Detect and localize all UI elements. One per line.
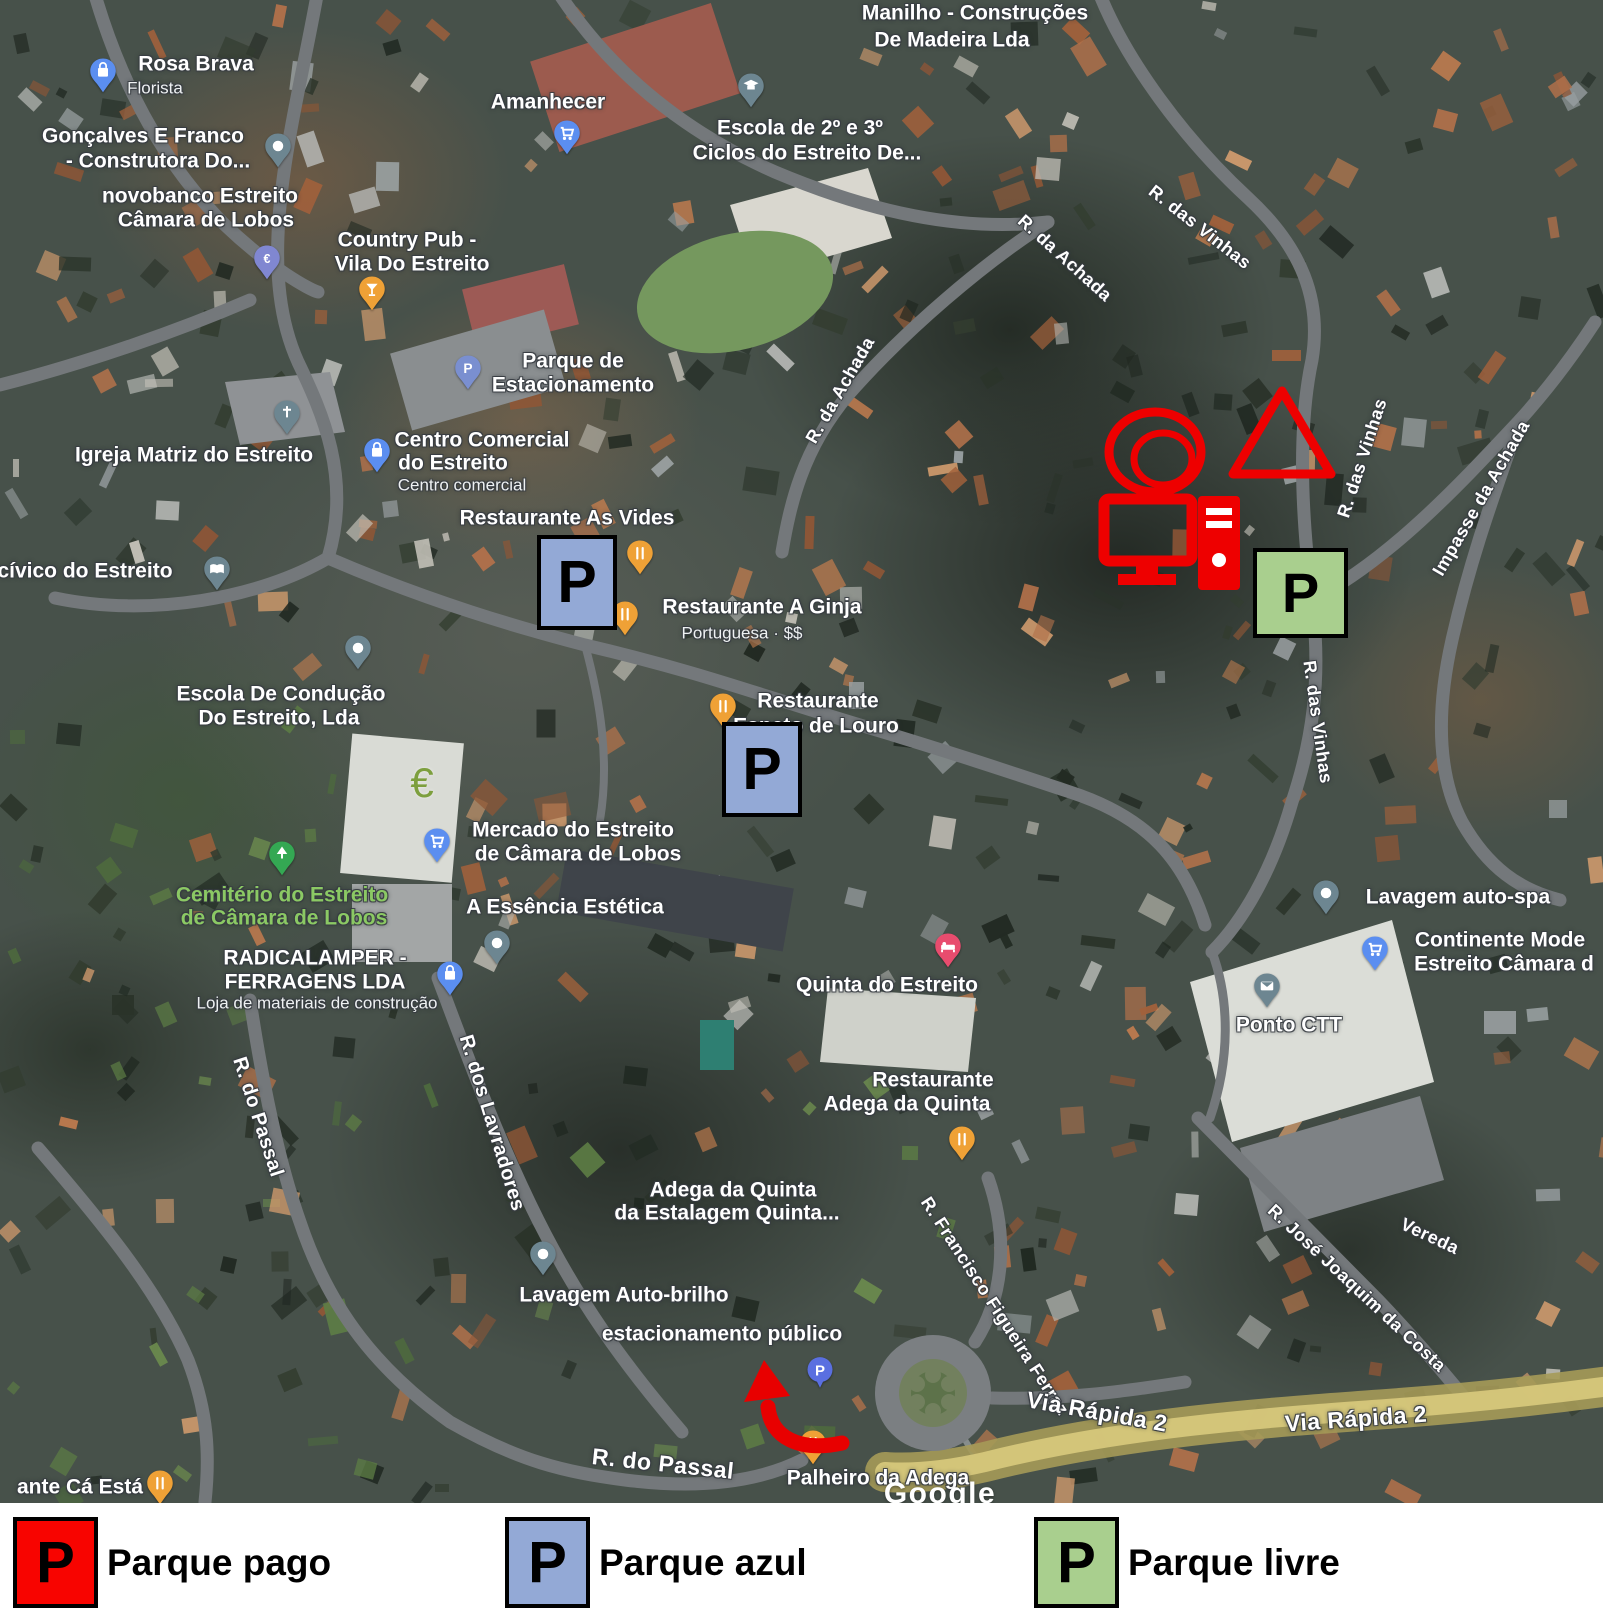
map-label: Estacionamento [492,375,654,396]
map-label: Igreja Matriz do Estreito [75,445,313,466]
bar-pin[interactable] [357,275,387,313]
post-office-pin[interactable] [1252,972,1282,1010]
map-label: Quinta do Estreito [796,975,978,996]
map-label: Amanhecer [491,92,605,113]
map-label: RADICALAMPER - [223,948,406,969]
map-label: Ciclos do Estreito De... [693,143,922,164]
place-pin[interactable] [528,1240,558,1278]
legend-parking-box-red: P [13,1517,98,1608]
library-pin[interactable] [202,555,232,593]
satellite-map[interactable]: Manilho - ConstruçõesDe Madeira LdaRosa … [0,0,1603,1503]
public-parking-pin[interactable]: P [805,1355,835,1393]
legend-parking-box-green: P [1034,1517,1119,1608]
shop-pin[interactable] [362,437,392,475]
place-pin[interactable] [1311,879,1341,917]
shop-pin[interactable] [88,57,118,95]
legend-label: Parque pago [107,1542,331,1584]
store-pin[interactable] [552,119,582,157]
map-label: do Estreito [398,453,508,474]
map-label: Estreito Câmara d [1414,954,1594,975]
map-label: Cemitério do Estreito [176,885,388,906]
map-label: Rosa Brava [138,54,254,75]
map-label: - Construtora Do... [66,151,250,172]
map-label: Restaurante A Ginja [662,597,861,618]
map-label: cívico do Estreito [0,561,173,582]
map-label: A Essência Estética [466,897,664,918]
map-label: Gonçalves E Franco [42,126,244,147]
screenshot: Manilho - ConstruçõesDe Madeira LdaRosa … [0,0,1603,1612]
map-label: Country Pub - [338,230,477,251]
map-label: Lavagem Auto-brilho [519,1285,728,1306]
map-label: Portuguesa · $$ [682,625,803,642]
parking-box-blue[interactable]: P [722,722,802,817]
svg-text:P: P [463,361,472,376]
map-label: Adega da Quinta [824,1094,991,1115]
parking-box-blue[interactable]: P [537,535,617,630]
school-pin[interactable] [736,72,766,110]
parking-pin[interactable]: P [453,354,483,392]
map-label: Vila Do Estreito [335,254,490,275]
map-label: FERRAGENS LDA [225,972,406,993]
place-pin[interactable] [482,929,512,967]
map-label: Parque de [522,351,624,372]
restaurant-pin[interactable] [625,539,655,577]
map-label: novobanco Estreito [102,186,298,207]
map-label: Restaurante As Vides [460,508,675,529]
map-label: ante Cá Está [17,1477,143,1498]
store-pin[interactable] [422,827,452,865]
map-label: da Estalagem Quinta... [614,1203,839,1224]
restaurant-pin[interactable] [947,1125,977,1163]
map-label: Florista [127,80,183,97]
map-label: Câmara de Lobos [118,210,294,231]
map-label: De Madeira Lda [874,30,1029,51]
restaurant-pin[interactable] [145,1469,175,1503]
legend-label: Parque livre [1128,1542,1340,1584]
map-label: Escola de 2º e 3º [717,118,883,139]
svg-text:€: € [264,252,271,266]
map-label: Centro Comercial [394,430,569,451]
legend-item-parque-livre: P Parque livre [1034,1517,1340,1608]
parking-letter: P [742,740,781,799]
parking-letter: P [1282,565,1319,621]
store-pin[interactable] [1360,935,1390,973]
map-label: Centro comercial [398,477,527,494]
parking-box-green[interactable]: P [1253,548,1348,638]
map-label: Adega da Quinta [650,1180,817,1201]
map-label: Restaurante [872,1070,993,1091]
place-pin[interactable] [343,634,373,672]
map-label: Lavagem auto-spa [1366,887,1550,908]
cemetery-pin[interactable] [267,840,297,878]
map-label: Restaurante [757,691,878,712]
parking-letter: P [528,1534,567,1592]
legend-item-parque-azul: P Parque azul [505,1517,807,1608]
legend-parking-box-blue: P [505,1517,590,1608]
google-watermark: Google [884,1479,996,1503]
hotel-pin[interactable] [933,932,963,970]
parking-letter: P [1057,1534,1096,1592]
map-label: Escola De Condução [177,684,386,705]
shop-pin[interactable] [435,960,465,998]
map-label: estacionamento público [602,1324,842,1345]
restaurant-pin[interactable] [798,1429,828,1467]
legend: P Parque pago P Parque azul P Parque liv… [0,1503,1603,1612]
map-label: de Câmara de Lobos [181,908,388,929]
map-label: Continente Mode [1415,930,1585,951]
map-label: Mercado do Estreito [472,820,674,841]
map-label: de Câmara de Lobos [475,844,682,865]
map-label: Ponto CTT [1236,1015,1342,1036]
parking-letter: P [36,1534,75,1592]
legend-label: Parque azul [599,1542,807,1584]
map-label: Manilho - Construções [862,3,1088,24]
legend-item-parque-pago: P Parque pago [13,1517,331,1608]
map-label: € [410,762,433,804]
church-pin[interactable] [272,399,302,437]
bank-pin[interactable]: € [252,244,282,282]
place-pin[interactable] [263,132,293,170]
map-label: Loja de materiais de construção [197,995,438,1012]
map-label: Do Estreito, Lda [198,708,359,729]
parking-letter: P [557,553,596,612]
svg-text:P: P [815,1362,825,1379]
